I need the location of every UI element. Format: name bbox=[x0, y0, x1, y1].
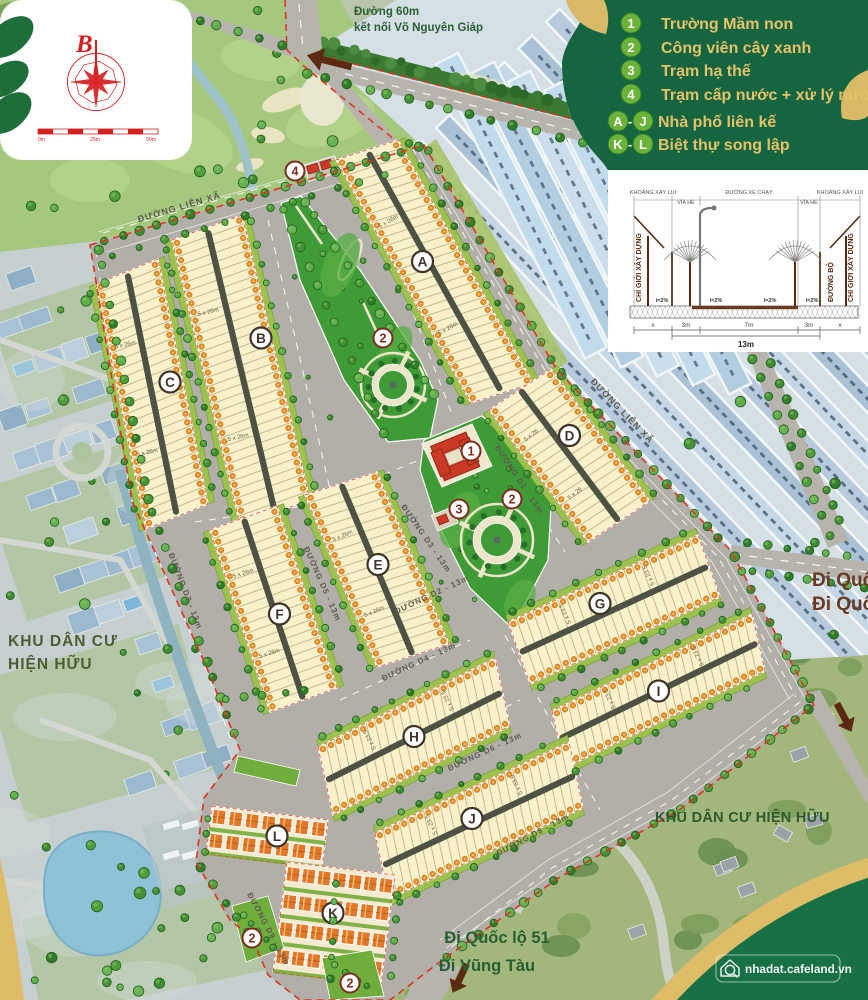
svg-text:E: E bbox=[373, 557, 382, 572]
svg-text:i=2%: i=2% bbox=[764, 298, 777, 304]
svg-text:F: F bbox=[275, 607, 283, 622]
svg-text:4: 4 bbox=[292, 165, 299, 179]
svg-text:A: A bbox=[418, 254, 428, 269]
svg-text:Đi Quốc lộ: Đi Quốc lộ bbox=[812, 570, 868, 591]
svg-text:K: K bbox=[613, 137, 623, 152]
svg-text:HIỆN HỮU: HIỆN HỮU bbox=[8, 655, 93, 673]
svg-text:nhadat.cafeland.vn: nhadat.cafeland.vn bbox=[745, 962, 852, 976]
svg-text:i=2%: i=2% bbox=[806, 298, 819, 304]
svg-text:2: 2 bbox=[380, 332, 387, 346]
svg-text:C: C bbox=[165, 375, 175, 390]
svg-text:KHOẢNG XÂY LUI: KHOẢNG XÂY LUI bbox=[630, 189, 677, 196]
svg-text:4: 4 bbox=[627, 87, 635, 102]
svg-text:50m: 50m bbox=[146, 137, 156, 143]
svg-text:0m: 0m bbox=[38, 137, 45, 143]
svg-text:L: L bbox=[273, 829, 281, 844]
svg-text:Biệt thự song lập: Biệt thự song lập bbox=[658, 137, 790, 154]
svg-text:3: 3 bbox=[456, 503, 463, 517]
svg-text:1: 1 bbox=[627, 16, 634, 31]
svg-text:25m: 25m bbox=[90, 137, 100, 143]
svg-text:KHU DÂN CƯ HIỆN HỮU: KHU DÂN CƯ HIỆN HỮU bbox=[655, 808, 830, 826]
svg-text:KHOẢNG XÂY LUI: KHOẢNG XÂY LUI bbox=[817, 189, 864, 196]
svg-text:VỈA HÈ: VỈA HÈ bbox=[800, 199, 818, 206]
svg-text:2: 2 bbox=[509, 493, 516, 507]
svg-text:1: 1 bbox=[468, 445, 475, 459]
svg-text:VỈA HÈ: VỈA HÈ bbox=[677, 199, 695, 206]
svg-text:13m: 13m bbox=[738, 340, 754, 349]
svg-text:Đường 60m: Đường 60m bbox=[354, 6, 419, 18]
svg-text:-: - bbox=[628, 137, 632, 152]
svg-text:Trạm cấp nước + xử lý nước thả: Trạm cấp nước + xử lý nước thải bbox=[661, 87, 868, 104]
svg-text:i=2%: i=2% bbox=[656, 298, 669, 304]
svg-text:3m: 3m bbox=[804, 322, 813, 329]
svg-text:CHỈ GIỚI XÂY DỰNG: CHỈ GIỚI XÂY DỰNG bbox=[634, 233, 643, 302]
svg-text:B: B bbox=[256, 331, 266, 346]
svg-text:Trạm hạ thế: Trạm hạ thế bbox=[661, 63, 751, 80]
svg-text:L: L bbox=[639, 137, 647, 152]
svg-text:H: H bbox=[409, 729, 419, 744]
svg-text:Đi Quốc lộ 51: Đi Quốc lộ 51 bbox=[444, 929, 549, 947]
svg-text:G: G bbox=[595, 596, 606, 611]
svg-text:2: 2 bbox=[627, 40, 634, 55]
svg-text:J: J bbox=[468, 811, 476, 826]
svg-text:kết nối Võ Nguyên Giáp: kết nối Võ Nguyên Giáp bbox=[354, 22, 483, 34]
svg-text:D: D bbox=[565, 428, 575, 443]
svg-text:KHU DÂN CƯ: KHU DÂN CƯ bbox=[8, 632, 118, 650]
svg-text:J: J bbox=[639, 114, 646, 129]
svg-text:ĐƯỜNG XE CHẠY: ĐƯỜNG XE CHẠY bbox=[725, 189, 773, 196]
svg-text:7m: 7m bbox=[744, 322, 753, 329]
svg-text:CHỈ GIỚI XÂY DỰNG: CHỈ GIỚI XÂY DỰNG bbox=[846, 233, 855, 302]
svg-text:Nhà phố liên kế: Nhà phố liên kế bbox=[658, 114, 776, 131]
svg-text:2: 2 bbox=[249, 932, 256, 946]
svg-text:A: A bbox=[613, 114, 623, 129]
svg-text:3m: 3m bbox=[681, 322, 690, 329]
svg-text:Đi Vũng Tàu: Đi Vũng Tàu bbox=[439, 957, 535, 975]
svg-text:Đi Quốc lộ: Đi Quốc lộ bbox=[812, 594, 868, 615]
svg-text:Trường Mầm non: Trường Mầm non bbox=[661, 16, 793, 33]
svg-text:ĐƯỜNG BỘ: ĐƯỜNG BỘ bbox=[826, 262, 835, 302]
svg-text:i=2%: i=2% bbox=[710, 298, 723, 304]
svg-text:B: B bbox=[75, 31, 93, 58]
svg-text:Công viên cây xanh: Công viên cây xanh bbox=[661, 40, 811, 57]
svg-text:2: 2 bbox=[347, 977, 354, 991]
svg-text:3: 3 bbox=[627, 63, 634, 78]
svg-text:I: I bbox=[657, 684, 661, 699]
svg-text:-: - bbox=[628, 114, 632, 129]
